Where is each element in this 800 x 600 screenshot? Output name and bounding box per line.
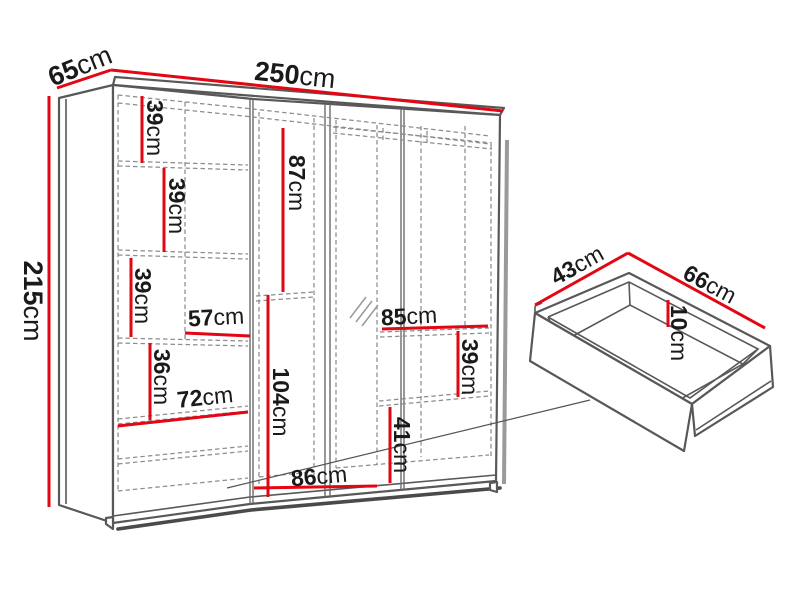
dim-label-depth: 65cm xyxy=(44,40,116,93)
dim-label-mid-bottom: 86cm xyxy=(290,461,348,492)
dim-label-cubby-width: 57cm xyxy=(187,303,245,332)
dim-label-drawer-width: 66cm xyxy=(679,259,741,308)
right-edge-shadow xyxy=(504,140,507,484)
dim-label-left-lower-shelf: 39cm xyxy=(130,268,156,324)
dim-label-left-lower: 36cm xyxy=(149,349,175,405)
dim-label-right-shelf: 85cm xyxy=(380,302,438,331)
dim-label-drawer-height: 10cm xyxy=(666,305,692,361)
diagram-svg: 215cm 65cm 250cm 39cm 39cm 39cm 57cm 36c… xyxy=(0,0,800,600)
dim-label-left-top-shelf: 39cm xyxy=(142,100,168,156)
left-foot xyxy=(106,517,113,529)
dim-label-left-mid-shelf: 39cm xyxy=(164,178,190,234)
dim-label-height: 215cm xyxy=(18,260,48,341)
dim-label-right-cubby: 39cm xyxy=(457,339,483,395)
wardrobe-side-panel xyxy=(59,85,113,523)
drawer-drawing xyxy=(530,273,773,451)
dim-label-mid-upper: 87cm xyxy=(284,155,310,211)
dim-label-right-lower: 41cm xyxy=(389,417,415,473)
right-foot xyxy=(490,482,497,492)
wardrobe-front-face xyxy=(113,85,500,523)
dimension-diagram: 215cm 65cm 250cm 39cm 39cm 39cm 57cm 36c… xyxy=(0,0,800,600)
dim-label-mid-lower: 104cm xyxy=(268,367,294,436)
